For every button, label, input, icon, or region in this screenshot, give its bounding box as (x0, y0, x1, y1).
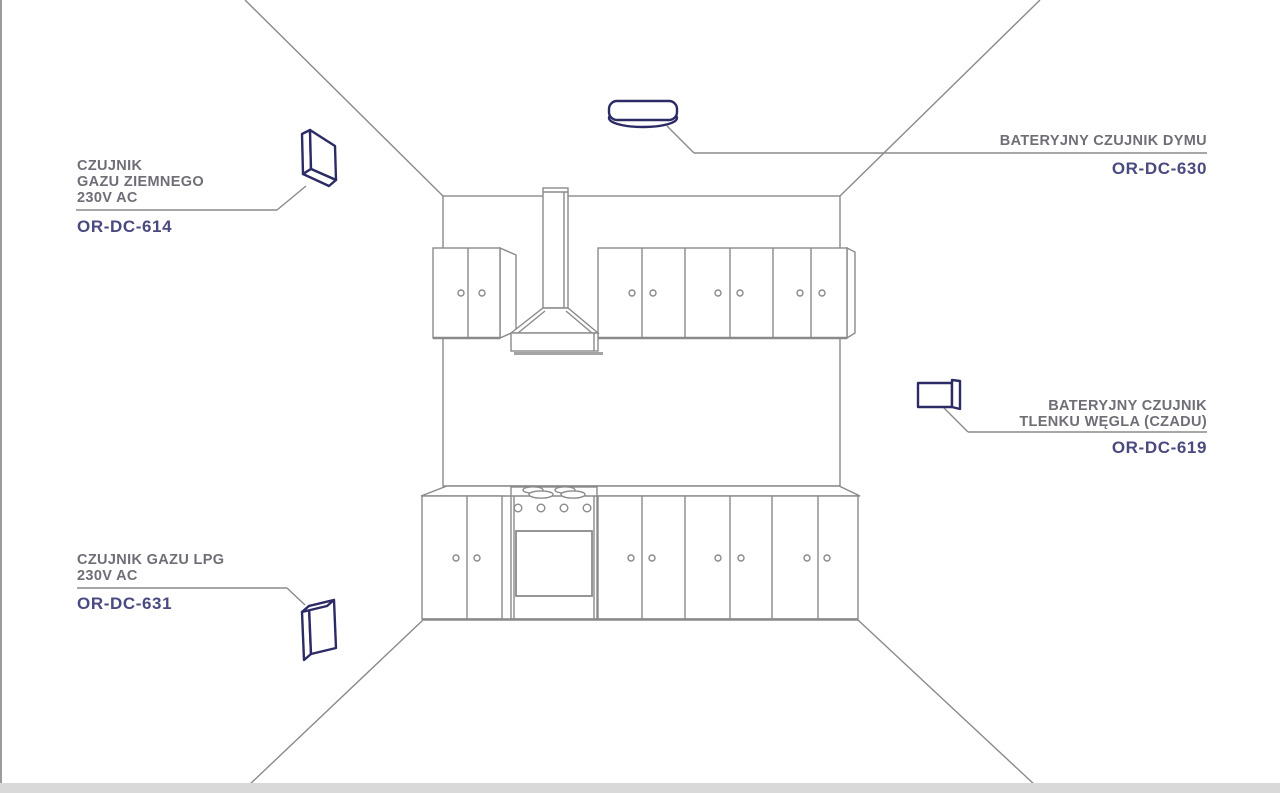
stove (511, 487, 597, 619)
label-line: CZUJNIK GAZU LPG (77, 552, 224, 568)
label-line: CZUJNIK (77, 158, 204, 174)
voltage-text: 230V AC (77, 568, 224, 584)
frame-left-border (0, 0, 2, 793)
lpg-sensor-code: OR-DC-631 (77, 594, 172, 614)
kitchen-sensor-placement-diagram: CZUJNIK GAZU ZIEMNEGO 230V AC OR-DC-614 … (0, 0, 1280, 793)
natural-gas-sensor-icon (302, 130, 336, 186)
countertop (421, 486, 860, 496)
lpg-sensor-icon (302, 600, 336, 660)
label-line: GAZU ZIEMNEGO (77, 174, 204, 190)
base-cabinet-left (422, 496, 502, 619)
co-sensor-icon (918, 380, 960, 409)
label-line: TLENKU WĘGLA (CZADU) (1019, 414, 1207, 430)
upper-cabinet-left (433, 248, 516, 338)
oven-door (516, 531, 592, 596)
label-line: BATERYJNY CZUJNIK (1019, 398, 1207, 414)
natural-gas-sensor-label: CZUJNIK GAZU ZIEMNEGO 230V AC (77, 158, 204, 206)
base-cabinets-right (598, 496, 858, 619)
upper-cabinets-right (598, 248, 855, 338)
frame-bottom-strip (0, 783, 1280, 793)
co-sensor-label: BATERYJNY CZUJNIK TLENKU WĘGLA (CZADU) (1019, 398, 1207, 430)
co-sensor-code: OR-DC-619 (1112, 438, 1207, 458)
smoke-detector-code: OR-DC-630 (1112, 159, 1207, 179)
wall-panel (443, 196, 840, 486)
lpg-sensor-label: CZUJNIK GAZU LPG 230V AC (77, 552, 224, 584)
label-line: BATERYJNY CZUJNIK DYMU (1000, 133, 1207, 149)
natural-gas-sensor-code: OR-DC-614 (77, 217, 172, 237)
smoke-detector-icon (609, 101, 677, 127)
voltage-text: 230V AC (77, 190, 204, 206)
kitchen-line-drawing (0, 0, 1280, 793)
smoke-detector-label: BATERYJNY CZUJNIK DYMU (1000, 133, 1207, 149)
